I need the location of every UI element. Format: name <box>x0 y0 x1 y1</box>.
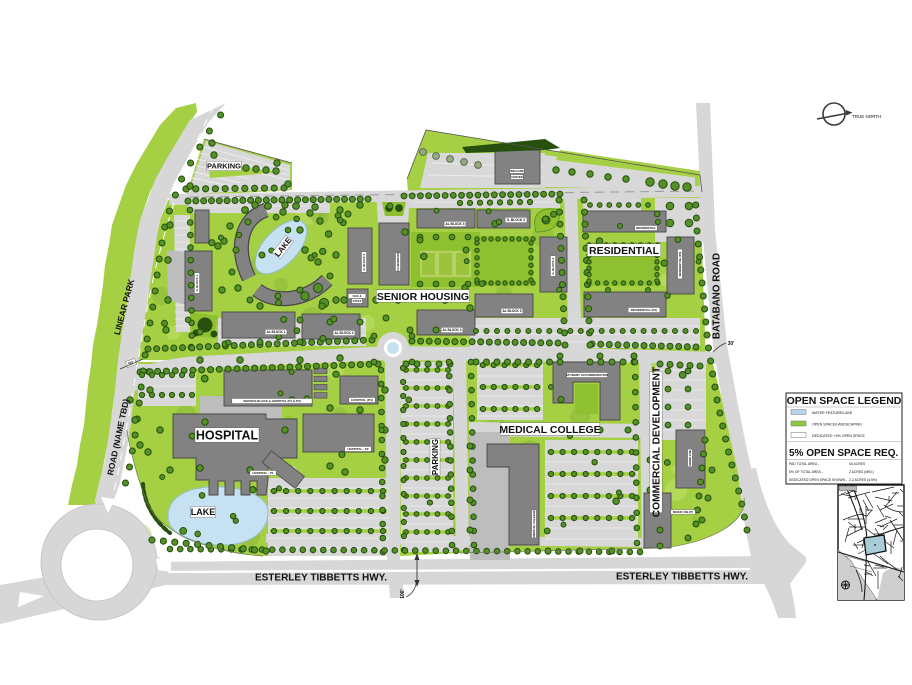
svg-text:OPEN SPACE/LANDSCAPING: OPEN SPACE/LANDSCAPING <box>812 423 862 427</box>
svg-text:IL BLOCK 4: IL BLOCK 4 <box>551 257 555 274</box>
svg-text:STAFF: STAFF <box>353 299 362 303</box>
svg-text:DEDICATED OPEN SPACE SHOWN -: DEDICATED OPEN SPACE SHOWN - <box>789 478 847 482</box>
svg-text:ESTERLEY TIBBETTS HWY.: ESTERLEY TIBBETTS HWY. <box>616 572 748 583</box>
svg-text:2 ACRES (MIN.): 2 ACRES (MIN.) <box>849 470 874 474</box>
svg-text:40 ACRES: 40 ACRES <box>849 462 866 466</box>
svg-text:AL BLOCK 3: AL BLOCK 3 <box>445 222 464 226</box>
svg-text:AL BLOCK 1: AL BLOCK 1 <box>266 330 285 334</box>
svg-text:BATABANO ROAD: BATABANO ROAD <box>712 253 723 339</box>
svg-text:LAKE: LAKE <box>191 507 216 517</box>
svg-text:IL BLOCK 2: IL BLOCK 2 <box>362 253 366 270</box>
svg-text:WATER FEATURE/LAKE: WATER FEATURE/LAKE <box>812 411 853 415</box>
svg-text:DEDICATED +5% OPEN SPACE: DEDICATED +5% OPEN SPACE <box>812 434 865 438</box>
svg-text:IL BLOCK 3: IL BLOCK 3 <box>507 218 525 222</box>
svg-text:100': 100' <box>400 589 406 599</box>
svg-text:COMMERCIAL DEVELOPMENT: COMMERCIAL DEVELOPMENT <box>652 366 663 517</box>
svg-text:RESIDENTIAL (P3): RESIDENTIAL (P3) <box>678 252 682 277</box>
svg-text:MEDICAL COLLEGE: MEDICAL COLLEGE <box>532 510 536 537</box>
svg-text:ESTERLEY TIBBETTS HWY.: ESTERLEY TIBBETTS HWY. <box>255 573 387 584</box>
svg-text:MIXED USE: MIXED USE <box>688 450 692 466</box>
svg-text:5% OPEN SPACE REQ.: 5% OPEN SPACE REQ. <box>789 448 899 459</box>
svg-text:HOSPITAL - P1: HOSPITAL - P1 <box>252 471 274 475</box>
svg-text:OHC &: OHC & <box>352 294 361 298</box>
svg-text:RESIDENTIAL (P1): RESIDENTIAL (P1) <box>631 308 657 312</box>
svg-text:RESIDENTIAL: RESIDENTIAL <box>589 245 660 257</box>
svg-text:PARKING: PARKING <box>431 439 440 475</box>
svg-text:HOSPITAL - P2: HOSPITAL - P2 <box>347 447 369 451</box>
svg-text:AL BLOCK 5: AL BLOCK 5 <box>502 309 521 313</box>
svg-text:OPEN SPACE LEGEND: OPEN SPACE LEGEND <box>787 395 902 407</box>
svg-text:RESIDENTIAL: RESIDENTIAL <box>636 226 656 230</box>
svg-text:AL BLOCK 4: AL BLOCK 4 <box>442 328 461 332</box>
svg-text:2.2 ACRES (4.5%): 2.2 ACRES (4.5%) <box>849 478 877 482</box>
svg-text:HOSPITAL: HOSPITAL <box>196 429 259 443</box>
svg-text:IL BLOCK 1: IL BLOCK 1 <box>195 274 199 291</box>
svg-text:SERVICE BLOCK & HOSPITAL (P1 &: SERVICE BLOCK & HOSPITAL (P1 & P3) <box>243 399 300 403</box>
svg-text:MIXED USE (P): MIXED USE (P) <box>673 510 693 514</box>
svg-text:PAD TOTAL AREA -: PAD TOTAL AREA - <box>789 462 819 466</box>
svg-text:AL BLOCK 2: AL BLOCK 2 <box>334 331 353 335</box>
svg-text:TRUE NORTH: TRUE NORTH <box>852 114 881 119</box>
svg-text:WELFARE: WELFARE <box>510 169 524 173</box>
svg-text:CENTER: CENTER <box>511 175 523 179</box>
svg-text:SENIOR HOUSING: SENIOR HOUSING <box>377 291 469 303</box>
svg-text:5% OF TOTAL AREA -: 5% OF TOTAL AREA - <box>789 470 823 474</box>
svg-text:30': 30' <box>728 341 735 347</box>
svg-text:CLUBHOUSE: CLUBHOUSE <box>396 252 400 271</box>
svg-text:STUDENT ACCOMMODATION: STUDENT ACCOMMODATION <box>566 373 608 377</box>
svg-text:MEDICAL COLLEGE: MEDICAL COLLEGE <box>499 424 600 436</box>
svg-text:HOSPITAL (P4): HOSPITAL (P4) <box>351 398 372 402</box>
svg-text:PARKING: PARKING <box>207 162 241 171</box>
